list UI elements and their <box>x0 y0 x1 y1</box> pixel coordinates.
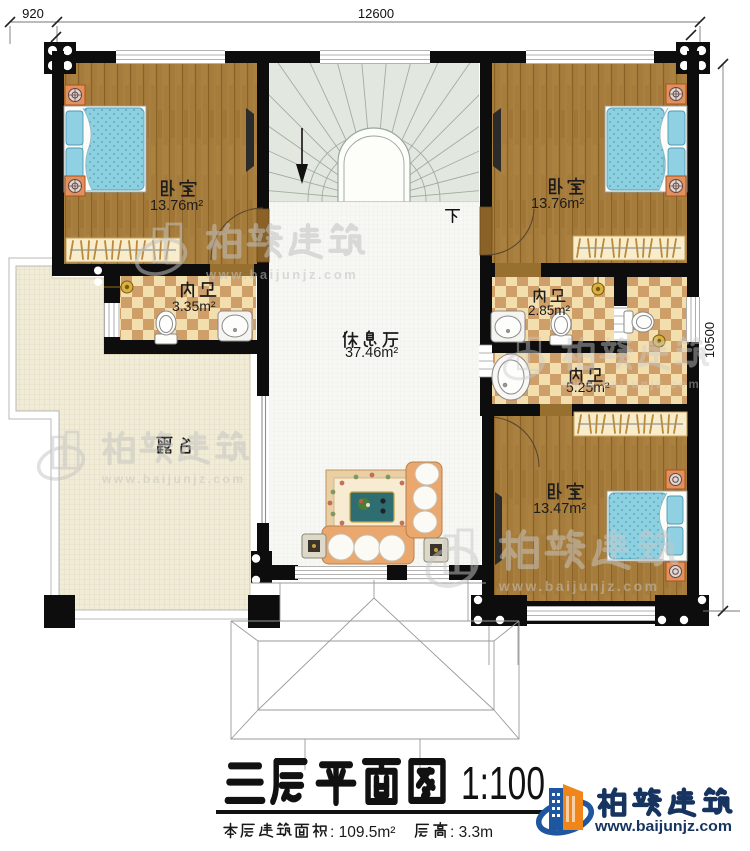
svg-text:37.46m²: 37.46m² <box>345 345 398 361</box>
svg-text:13.76m²: 13.76m² <box>150 198 203 214</box>
svg-text:www.baijunjz.com: www.baijunjz.com <box>561 379 701 391</box>
svg-text:2.85m²: 2.85m² <box>528 303 571 318</box>
svg-text:1:100: 1:100 <box>461 757 545 809</box>
svg-text:www.baijunjz.com: www.baijunjz.com <box>594 818 732 835</box>
svg-text:12600: 12600 <box>358 6 394 21</box>
svg-text:www.baijunjz.com: www.baijunjz.com <box>205 267 358 282</box>
svg-text:13.47m²: 13.47m² <box>533 501 586 517</box>
svg-text:13.76m²: 13.76m² <box>531 196 584 212</box>
svg-text:: 3.3m: : 3.3m <box>450 824 493 841</box>
svg-text:3.35m²: 3.35m² <box>172 298 216 314</box>
svg-text:www.baijunjz.com: www.baijunjz.com <box>101 472 246 486</box>
svg-text:: 109.5m²: : 109.5m² <box>330 824 395 841</box>
svg-text:www.baijunjz.com: www.baijunjz.com <box>498 578 660 594</box>
svg-text:920: 920 <box>22 6 44 21</box>
